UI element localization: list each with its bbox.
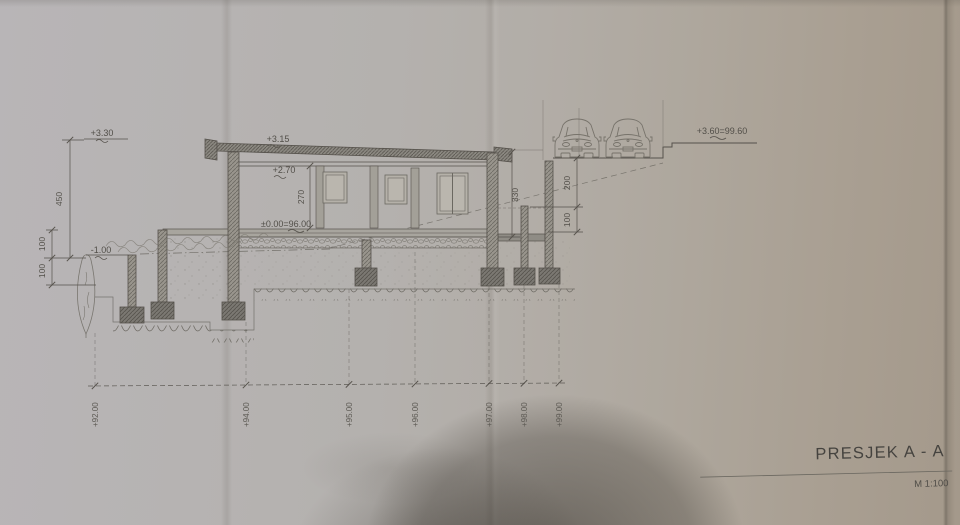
left-wall-footing (222, 302, 245, 320)
dim-platform-lower: 100 (562, 213, 572, 227)
window (385, 175, 407, 204)
dim-rear-wall: 330 (510, 188, 520, 202)
level-roof-parapet: +3.30 (91, 128, 114, 138)
level-ground: -1.00 (91, 245, 112, 255)
terrain (95, 163, 663, 343)
drawing-title: PRESJEK A - A (815, 442, 945, 463)
section-drawing: +3.30 -1.00 +3.15 +2.70 ±0.00=96.00 +3.6… (0, 0, 960, 525)
right-wall (487, 153, 498, 270)
datum-label: +94.00 (242, 402, 251, 427)
right-wall-footing (481, 268, 504, 286)
window-double (437, 173, 468, 214)
photographed-blueprint: +3.30 -1.00 +3.15 +2.70 ±0.00=96.00 +3.6… (0, 0, 960, 525)
title-rule (700, 471, 952, 477)
datum-label: +96.00 (411, 402, 420, 427)
car-icon (604, 119, 652, 158)
datum-label: +95.00 (345, 402, 354, 427)
cypress-tree-icon (77, 255, 95, 338)
datum-label: +99.00 (555, 402, 564, 427)
partition-wall (370, 166, 378, 228)
dim-total-height: 450 (54, 192, 64, 206)
dim-platform-upper: 200 (562, 176, 572, 190)
retaining-wall (545, 161, 553, 268)
level-roof: +3.15 (267, 134, 290, 144)
level-floor: ±0.00=96.00 (261, 219, 311, 229)
garden-wall (521, 206, 528, 268)
partition-wall (411, 168, 419, 228)
drawing-scale: M 1:100 (914, 478, 949, 490)
level-ceiling: +2.70 (273, 165, 296, 175)
datum-label: +97.00 (485, 402, 494, 427)
dim-room-height: 270 (296, 190, 306, 204)
car-icon (553, 119, 601, 158)
level-street: +3.60=99.60 (697, 126, 748, 136)
datum-label: +92.00 (91, 402, 100, 427)
dim-ground-upper: 100 (37, 237, 47, 251)
dim-ground-lower: 100 (37, 264, 47, 278)
title-block: PRESJEK A - A M 1:100 (700, 442, 953, 495)
left-wall (228, 152, 239, 302)
window (323, 172, 347, 203)
datum-label: +98.00 (520, 402, 529, 427)
